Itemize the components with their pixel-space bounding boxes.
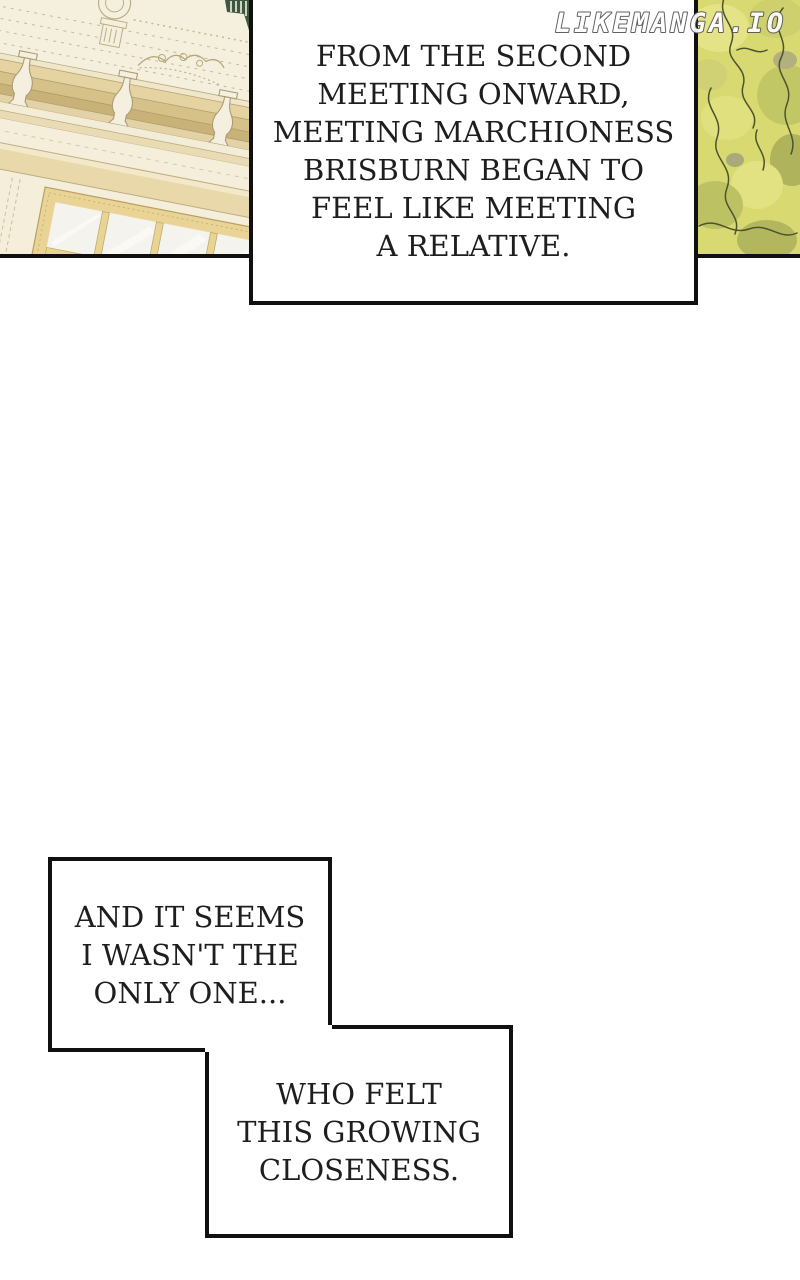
narration-line: MEETING MARCHIONESS (273, 113, 675, 151)
speech-2-line: THIS GROWING (237, 1113, 481, 1151)
speech-1-text: AND IT SEEMS I WASN'T THE ONLY ONE... (75, 898, 306, 1012)
speech-2-line: CLOSENESS. (237, 1151, 481, 1189)
building-illustration (0, 0, 252, 254)
speech-box-1: AND IT SEEMS I WASN'T THE ONLY ONE... (48, 857, 332, 1052)
speech-1-line: ONLY ONE... (75, 974, 306, 1012)
narration-line: A RELATIVE. (273, 227, 675, 265)
site-watermark: LIKEMANGA.IO (512, 3, 792, 43)
building-artwork (0, 0, 252, 254)
narration-line: BRISBURN BEGAN TO (273, 151, 675, 189)
speech-box-join (205, 1025, 332, 1052)
speech-1-line: I WASN'T THE (75, 936, 306, 974)
narration-line: FEEL LIKE MEETING (273, 189, 675, 227)
narration-line: MEETING ONWARD, (273, 75, 675, 113)
speech-2-text: WHO FELT THIS GROWING CLOSENESS. (237, 1075, 481, 1189)
speech-box-2: WHO FELT THIS GROWING CLOSENESS. (205, 1025, 513, 1238)
narration-text: FROM THE SECOND MEETING ONWARD, MEETING … (273, 37, 675, 265)
speech-1-line: AND IT SEEMS (75, 898, 306, 936)
watermark-text: LIKEMANGA.IO (555, 8, 786, 39)
speech-2-line: WHO FELT (237, 1075, 481, 1113)
narration-box: FROM THE SECOND MEETING ONWARD, MEETING … (249, 0, 698, 305)
comic-page: FROM THE SECOND MEETING ONWARD, MEETING … (0, 0, 800, 1280)
